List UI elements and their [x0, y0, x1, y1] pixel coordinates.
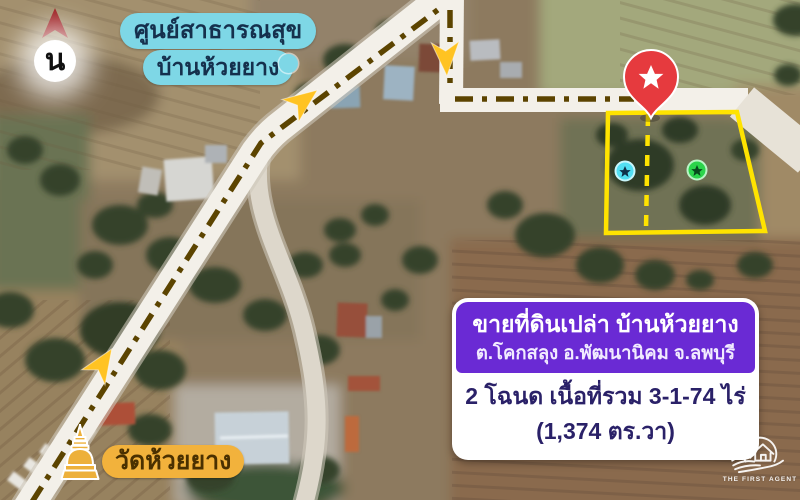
hand-house-logo-icon [729, 429, 791, 475]
compass-circle: น [34, 40, 76, 82]
compass: น [22, 6, 88, 90]
agency-logo: THE FIRST AGENT [722, 429, 798, 483]
health-center-line2: บ้านห้วยยาง [143, 50, 293, 85]
north-arrow-icon [22, 6, 88, 40]
listing-area-line2: (1,374 ตร.วา) [458, 414, 753, 449]
listing-map-image: น ศูนย์สาธารณสุข บ้านห้วยยาง วัดห้วยยาง … [0, 0, 800, 500]
health-center-label: ศูนย์สาธารณสุข บ้านห้วยยาง [120, 13, 316, 85]
compass-label: น [45, 46, 66, 76]
health-center-dot-icon [279, 54, 298, 73]
listing-area-line1: 2 โฉนด เนื้อที่รวม 3-1-74 ไร่ [458, 379, 753, 414]
pagoda-icon [56, 422, 104, 482]
plot-marker-cyan [616, 162, 635, 181]
plot-marker-green [688, 161, 707, 180]
listing-info-card: ขายที่ดินเปล่า บ้านห้วยยาง ต.โคกสลุง อ.พ… [452, 298, 759, 460]
listing-card-header: ขายที่ดินเปล่า บ้านห้วยยาง ต.โคกสลุง อ.พ… [456, 302, 755, 373]
agency-logo-text: THE FIRST AGENT [723, 476, 797, 483]
listing-title: ขายที่ดินเปล่า บ้านห้วยยาง [458, 308, 753, 341]
health-center-line1: ศูนย์สาธารณสุข [120, 13, 316, 49]
temple-label: วัดห้วยยาง [102, 445, 244, 478]
listing-location: ต.โคกสลุง อ.พัฒนานิคม จ.ลพบุรี [458, 341, 753, 366]
listing-card-body: 2 โฉนด เนื้อที่รวม 3-1-74 ไร่ (1,374 ตร.… [456, 373, 755, 456]
